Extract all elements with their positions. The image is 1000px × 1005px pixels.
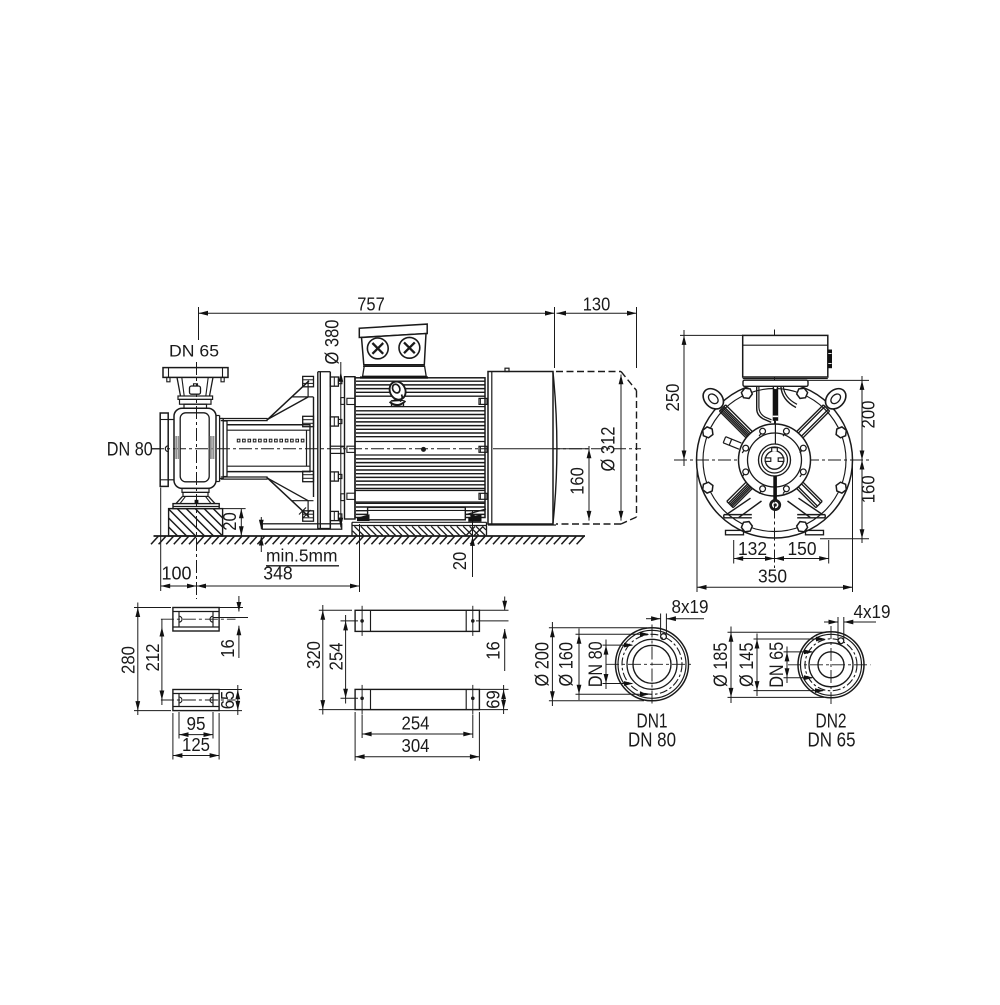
- svg-text:320: 320: [304, 641, 324, 669]
- svg-text:304: 304: [402, 736, 430, 756]
- svg-text:95: 95: [187, 714, 206, 734]
- svg-text:20: 20: [220, 512, 240, 531]
- svg-text:Ø 160: Ø 160: [557, 642, 578, 687]
- svg-text:4x19: 4x19: [854, 602, 891, 622]
- svg-text:130: 130: [583, 295, 611, 315]
- svg-text:69: 69: [484, 690, 504, 709]
- svg-text:250: 250: [663, 384, 683, 412]
- svg-text:350: 350: [758, 567, 787, 587]
- svg-text:DN 65: DN 65: [808, 730, 856, 752]
- svg-text:16: 16: [484, 641, 504, 660]
- svg-text:min.5mm: min.5mm: [266, 546, 338, 566]
- svg-text:150: 150: [788, 539, 817, 559]
- svg-text:125: 125: [182, 735, 210, 755]
- svg-text:DN 80: DN 80: [628, 730, 676, 752]
- svg-text:254: 254: [402, 714, 430, 734]
- svg-text:16: 16: [218, 639, 238, 658]
- svg-text:DN 80: DN 80: [586, 641, 607, 687]
- svg-text:280: 280: [119, 646, 139, 674]
- svg-text:20: 20: [450, 552, 470, 571]
- svg-text:200: 200: [859, 401, 879, 429]
- svg-text:100: 100: [162, 564, 192, 584]
- svg-text:Ø 185: Ø 185: [711, 643, 732, 688]
- svg-text:65: 65: [218, 691, 238, 710]
- svg-text:Ø 312: Ø 312: [599, 427, 620, 472]
- svg-text:Ø 145: Ø 145: [737, 643, 758, 688]
- svg-text:8x19: 8x19: [672, 597, 709, 617]
- svg-text:160: 160: [859, 475, 879, 503]
- svg-text:757: 757: [357, 295, 385, 315]
- svg-text:348: 348: [263, 564, 293, 584]
- svg-text:Ø 200: Ø 200: [533, 642, 554, 687]
- svg-text:Ø 380: Ø 380: [323, 320, 344, 365]
- svg-text:160: 160: [568, 467, 588, 495]
- svg-text:132: 132: [738, 539, 767, 559]
- svg-text:212: 212: [143, 644, 163, 672]
- svg-text:254: 254: [327, 643, 347, 671]
- svg-text:DN 80: DN 80: [107, 439, 153, 461]
- svg-text:DN 65: DN 65: [169, 342, 219, 361]
- svg-text:DN 65: DN 65: [767, 642, 788, 688]
